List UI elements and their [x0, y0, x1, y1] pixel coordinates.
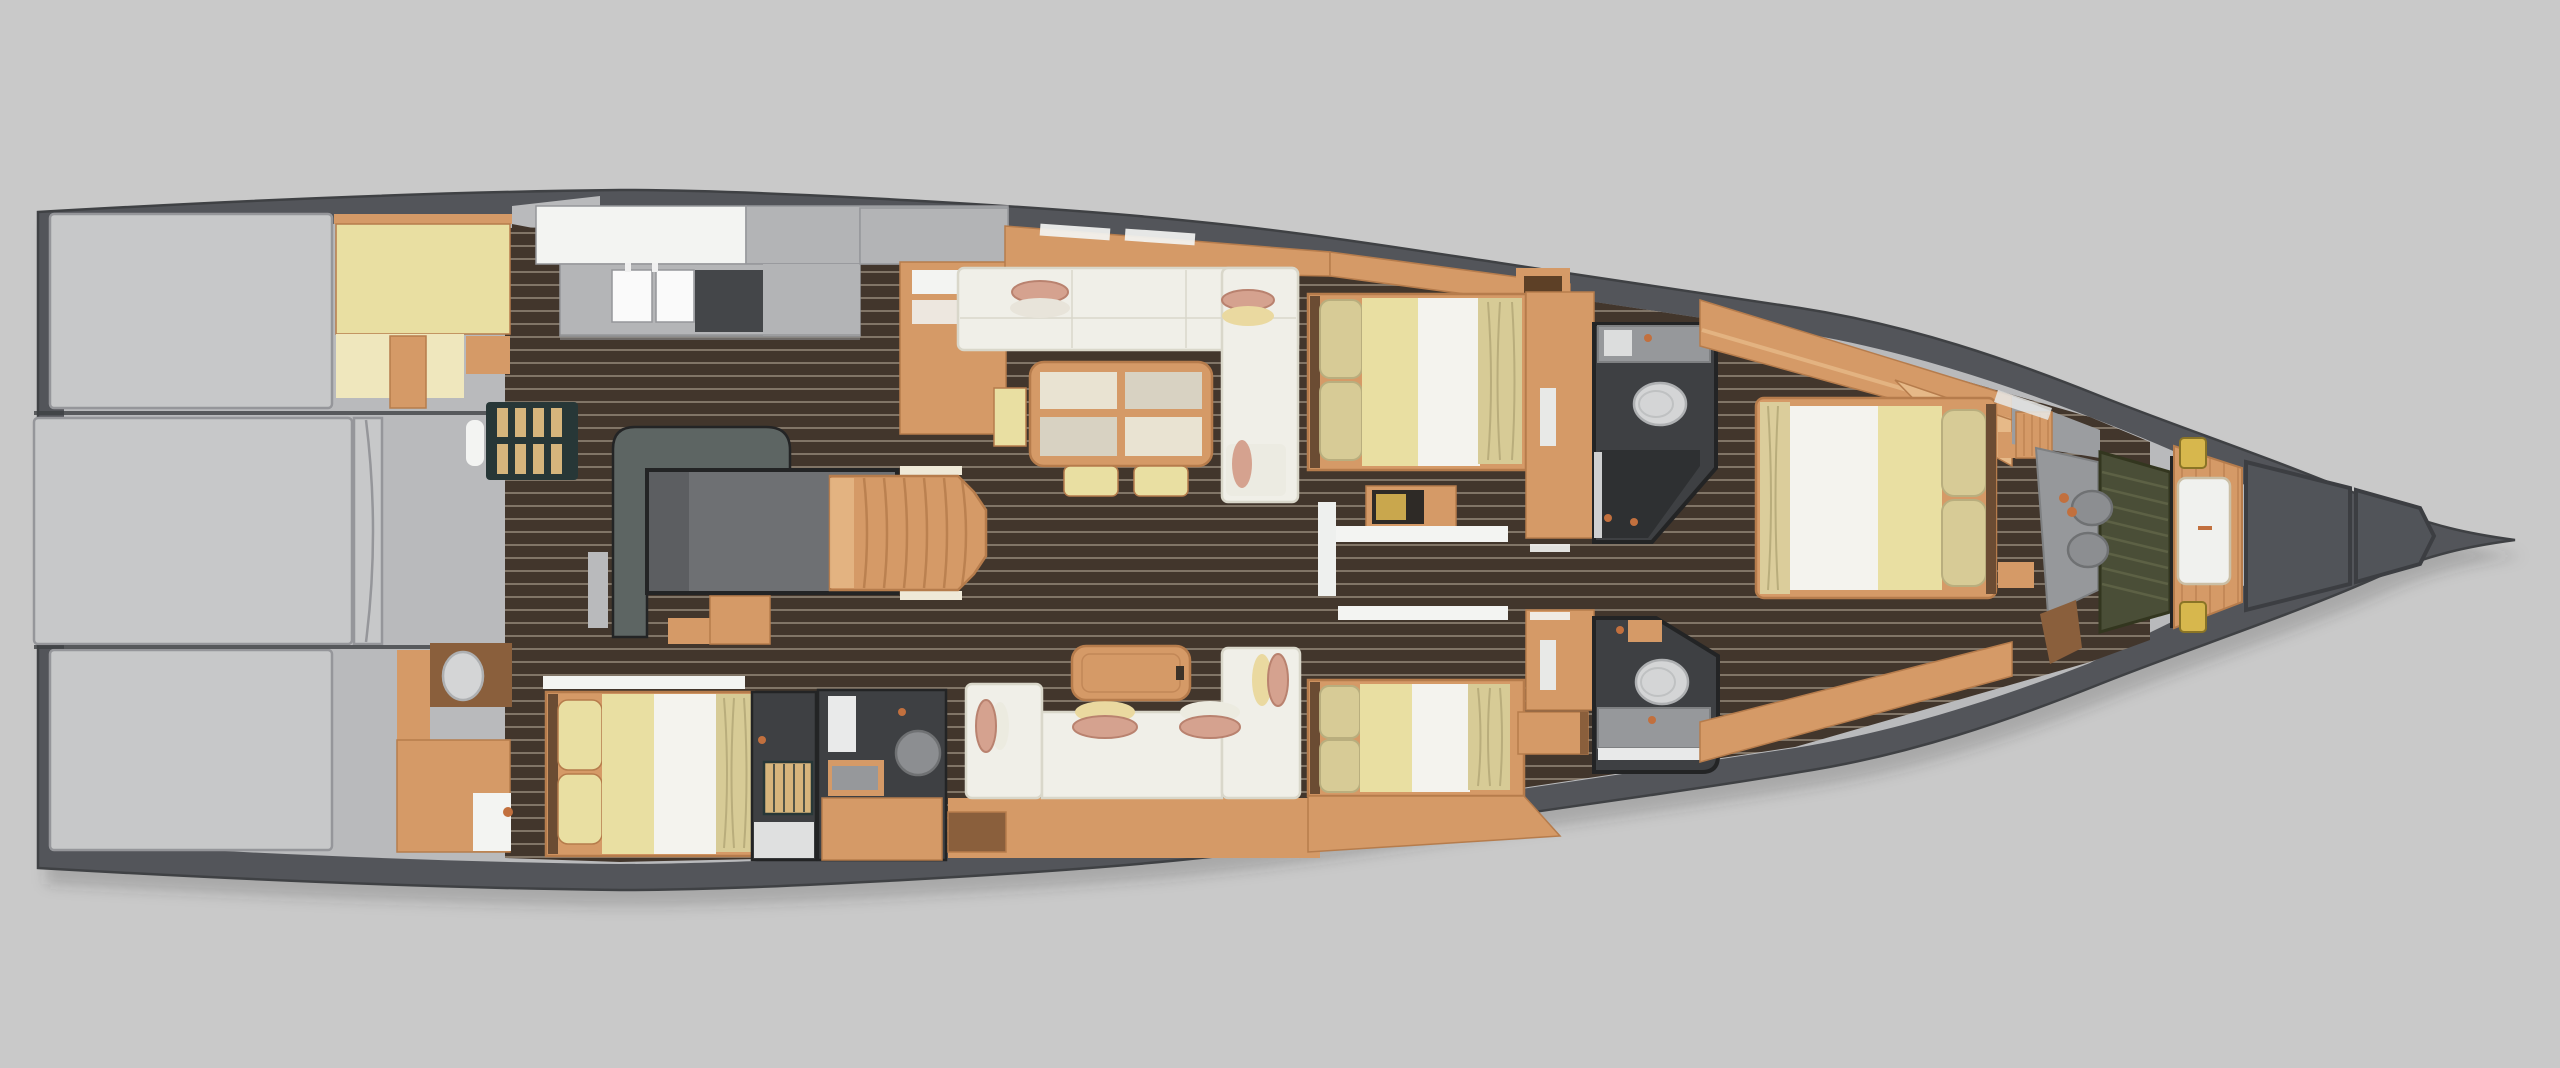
salon-locker-open: [948, 812, 1006, 852]
head2-counter: [1598, 748, 1710, 760]
forepeak-stool: [2180, 602, 2206, 632]
aft-cabin-pillow: [558, 774, 602, 844]
bench-side: [1580, 712, 1588, 754]
forepeak: [2174, 438, 2242, 632]
table-cross-bar: [1036, 409, 1206, 417]
aft-cabin-port: [543, 676, 946, 860]
fender: [466, 420, 484, 466]
aft-head: [397, 643, 513, 852]
guest2-headboard: [1310, 682, 1320, 794]
aft-cabin-duvet: [654, 694, 716, 854]
aft-head-panel: [397, 650, 430, 740]
aft-cabin-headboard: [548, 694, 558, 854]
head2-toilet: [1636, 660, 1688, 704]
counter-shadow: [560, 334, 860, 340]
aft-bath-vanity-cabinet: [822, 798, 942, 860]
galley-sink-1: [612, 270, 652, 322]
shower-fitting: [1630, 518, 1638, 526]
master-pillow: [1942, 500, 1986, 586]
guest-pillow: [1320, 300, 1362, 378]
table-top-quadrant: [1040, 372, 1118, 410]
sofa-pillow: [1010, 298, 1070, 318]
yacht-floorplan-canvas: [0, 0, 2560, 1068]
guest2-pillow: [1320, 740, 1360, 792]
sofa-pillow: [976, 700, 996, 752]
aft-bath-towel: [828, 696, 856, 752]
dining-stool: [1064, 466, 1118, 496]
galley-sink-2: [656, 270, 694, 322]
aft-head-faucet: [503, 807, 513, 817]
aft-head-basin-counter: [473, 793, 511, 851]
bow-locker-aft: [2246, 462, 2350, 610]
galley-faucet: [652, 263, 658, 272]
table-top-quadrant: [1040, 416, 1118, 456]
guest-pillow: [1320, 382, 1362, 460]
nav-wood-step: [710, 596, 770, 644]
guest-wardrobe: [1526, 292, 1594, 538]
stern-locker-middle: [34, 418, 352, 644]
head2-vanity: [1598, 708, 1710, 748]
bench-cloth: [1376, 494, 1406, 520]
step-landing-top: [900, 466, 962, 475]
dining-bench: [994, 388, 1026, 446]
step-landing-bottom: [900, 591, 962, 600]
guest-duvet: [1418, 298, 1480, 466]
berth-fitting: [2198, 526, 2212, 530]
aft-cabin-sheet: [602, 694, 654, 854]
guest-headboard: [1310, 296, 1320, 468]
aft-cabin-pillow: [558, 700, 602, 770]
head-sink: [1604, 330, 1632, 356]
galley-faucet: [625, 263, 631, 272]
master-sink: [2072, 491, 2112, 525]
stern-door-panel: [354, 418, 382, 644]
sofa-pillow: [1268, 654, 1288, 706]
head-door-edge: [1594, 452, 1602, 538]
aft-shower-tray: [754, 822, 814, 858]
wardrobe-door: [1540, 388, 1556, 446]
galley-cooktop: [695, 270, 763, 332]
guest-sheet: [1362, 298, 1418, 466]
crew-nightstand: [466, 336, 510, 374]
sofa-pillow: [1232, 440, 1252, 488]
galley-counter-aft: [763, 264, 860, 336]
coffee-table-handle: [1176, 666, 1184, 680]
aft-bath-faucet: [898, 708, 906, 716]
table-top-quadrant: [1124, 416, 1202, 456]
aft-shower-mixer: [758, 736, 766, 744]
grate-rail: [488, 437, 576, 444]
aft-head-toilet: [443, 652, 483, 700]
head2-faucet: [1648, 716, 1656, 724]
nav-side-panel: [588, 552, 608, 628]
table-top-quadrant: [1124, 372, 1202, 410]
galley-upper-cabinets: [536, 206, 746, 264]
shower-fitting: [1604, 514, 1612, 522]
companionway-steps: [830, 466, 986, 600]
aft-cabin-shelf: [543, 676, 745, 689]
master-pillow: [1942, 410, 1986, 496]
master-nightstand: [1998, 562, 2034, 588]
stern-locker-top: [50, 214, 332, 408]
amber-bottle: [2067, 507, 2077, 517]
corridor-door: [1530, 612, 1570, 620]
crew-berth-shelf: [334, 214, 512, 224]
aft-bath-basin: [896, 731, 940, 775]
salon-fwd-bulkhead: [1318, 502, 1336, 596]
sofa-pillow: [1222, 306, 1274, 326]
master-headboard: [1986, 404, 1996, 594]
guest2-wardrobe: [1526, 610, 1594, 710]
dining-stool: [1134, 466, 1188, 496]
forepeak-berth: [2178, 478, 2230, 584]
guest2-pillow: [1320, 686, 1360, 738]
amber-bottle: [2059, 493, 2069, 503]
aft-cabin-throw: [716, 694, 754, 852]
crew-berth-mattress: [336, 224, 510, 334]
wardrobe-door: [1540, 640, 1556, 690]
guest2-foot-bench: [1518, 712, 1588, 754]
head-faucet: [1644, 334, 1652, 342]
guest2-shelf: [1338, 606, 1508, 620]
guest2-sheet: [1360, 684, 1412, 792]
crew-berth-post: [390, 336, 426, 408]
corridor-door: [1530, 544, 1570, 552]
master-blanket: [1878, 406, 1942, 590]
salon-aft-lockers: [860, 208, 1008, 264]
engine-hatch-shade: [649, 472, 689, 591]
sofa-pillow: [1180, 716, 1240, 738]
head-toilet: [1634, 383, 1686, 425]
guest2-duvet: [1412, 684, 1470, 792]
steps-rail: [830, 478, 854, 588]
master-vanity: [2036, 448, 2098, 614]
head2-fitting: [1616, 626, 1624, 634]
nav-wood-locker: [668, 618, 712, 644]
stern-locker-bottom: [50, 650, 332, 850]
master-sink: [2068, 533, 2108, 567]
forepeak-stool: [2180, 438, 2206, 468]
aft-shower-grate: [764, 762, 812, 814]
guest-shelf: [1336, 526, 1508, 542]
sofa-pillow: [1073, 716, 1137, 738]
aft-bath-sink-tray: [832, 766, 878, 790]
head2-shelf: [1628, 620, 1662, 642]
